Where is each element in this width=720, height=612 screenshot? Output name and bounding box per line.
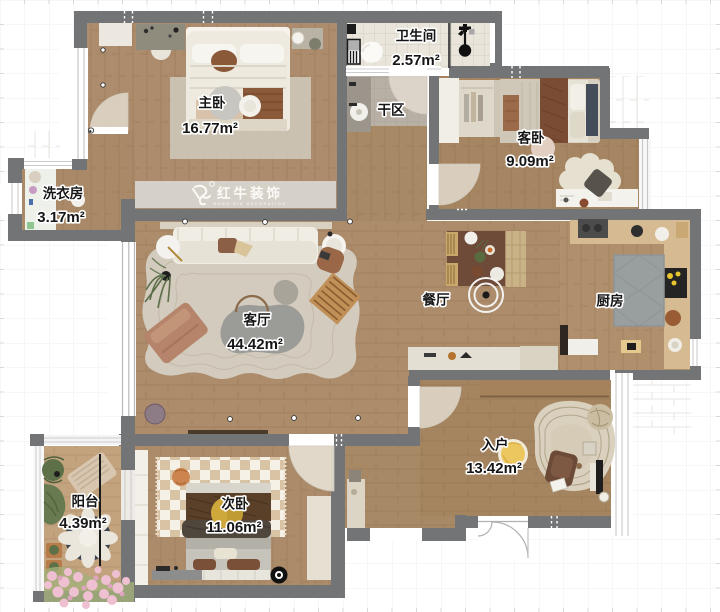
svg-text:16.77m²: 16.77m²: [182, 120, 238, 137]
svg-text:客卧: 客卧: [517, 130, 546, 146]
svg-text:洗衣房: 洗衣房: [43, 185, 84, 201]
svg-text:入户: 入户: [482, 437, 509, 453]
svg-text:11.06m²: 11.06m²: [206, 519, 261, 536]
svg-text:干区: 干区: [378, 103, 405, 118]
svg-text:次卧: 次卧: [222, 496, 249, 512]
svg-text:9.09m²: 9.09m²: [506, 153, 554, 170]
svg-text:红牛装饰: 红牛装饰: [217, 185, 283, 201]
svg-text:阳台: 阳台: [72, 493, 99, 509]
svg-text:HONG NIU DECORATION: HONG NIU DECORATION: [213, 202, 286, 206]
svg-text:主卧: 主卧: [199, 95, 226, 111]
svg-text:厨房: 厨房: [597, 293, 624, 309]
svg-text:44.42m²: 44.42m²: [227, 336, 283, 353]
svg-text:客厅: 客厅: [243, 312, 271, 328]
svg-text:卫生间: 卫生间: [396, 28, 437, 44]
svg-text:13.42m²: 13.42m²: [466, 460, 522, 477]
svg-text:4.39m²: 4.39m²: [59, 515, 107, 532]
svg-text:2.57m²: 2.57m²: [392, 52, 440, 69]
svg-text:3.17m²: 3.17m²: [37, 209, 85, 226]
svg-text:餐厅: 餐厅: [422, 292, 450, 308]
